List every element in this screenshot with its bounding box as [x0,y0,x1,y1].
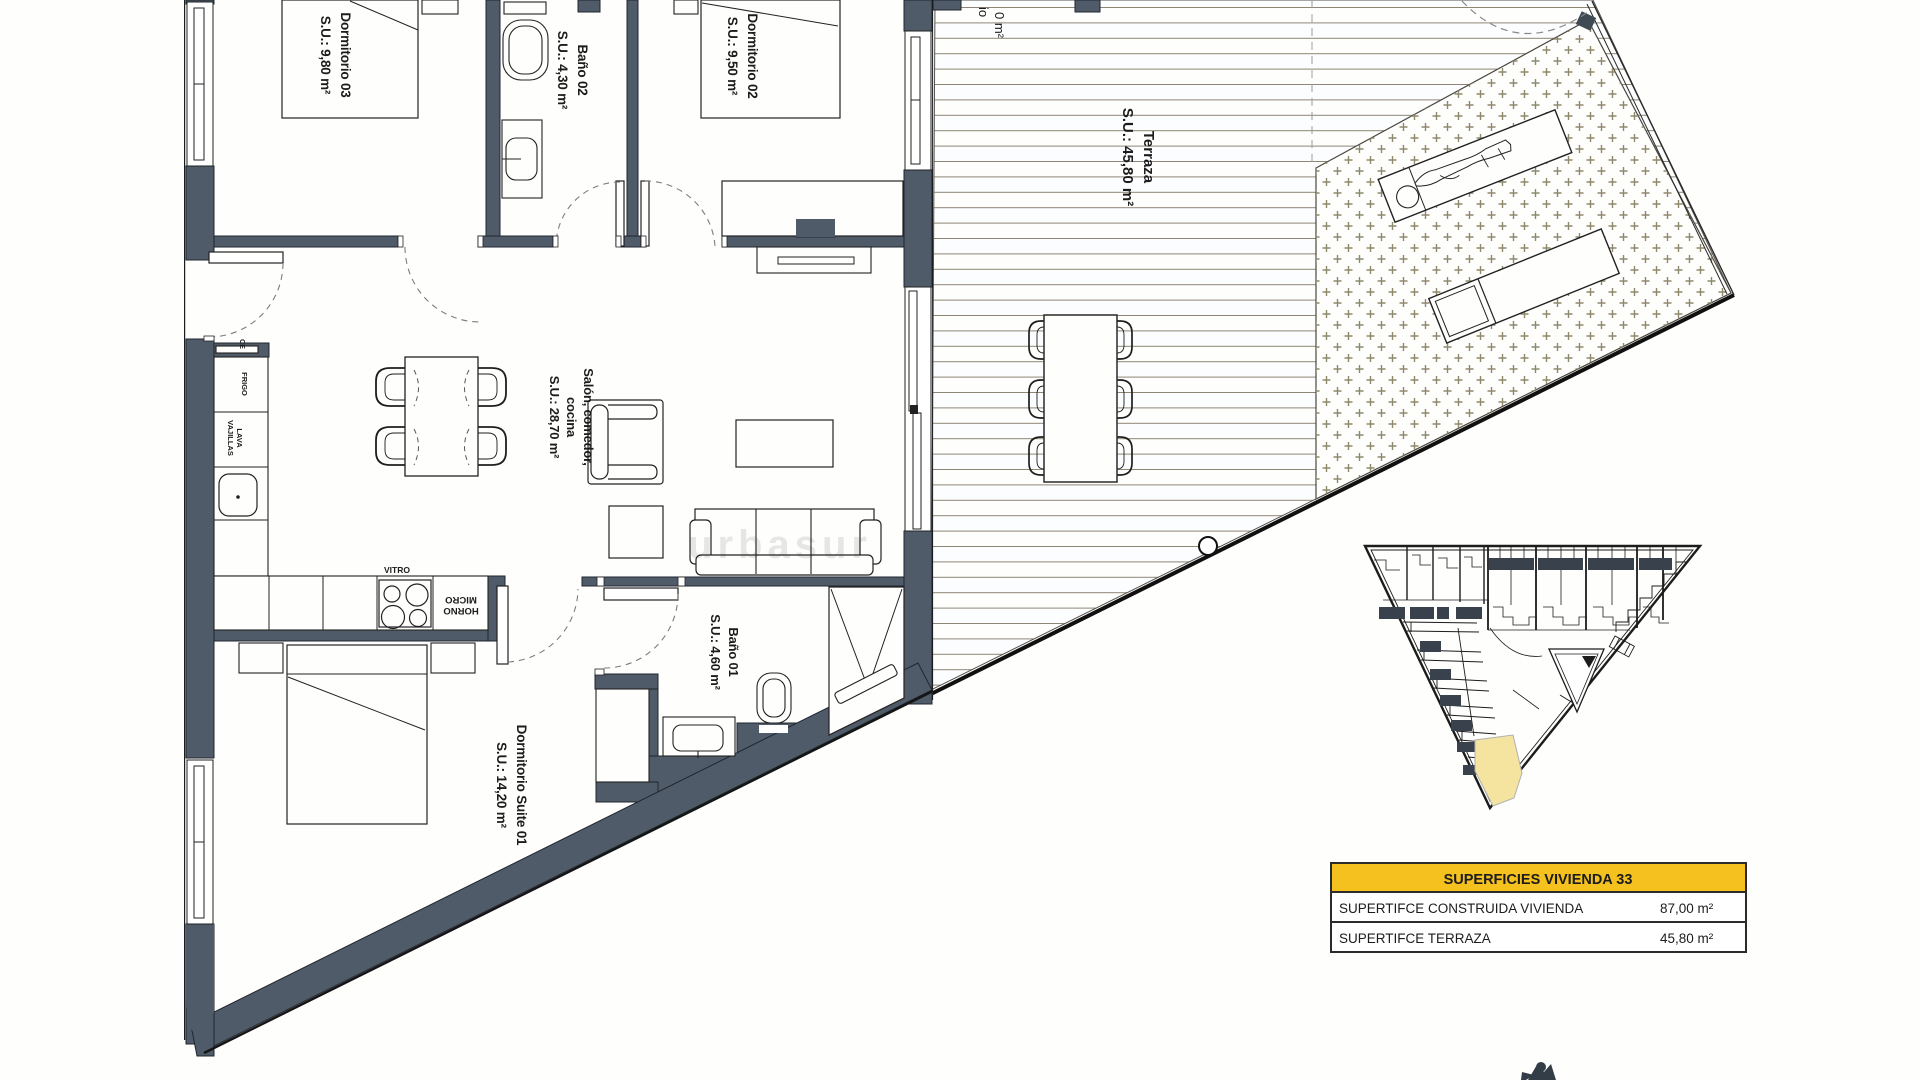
svg-text:87,00 m²: 87,00 m² [1660,901,1714,916]
svg-text:FRIGO: FRIGO [240,372,249,396]
svg-text:CE: CE [238,339,245,349]
svg-text:45,80 m²: 45,80 m² [1660,931,1714,946]
svg-text:0 m²: 0 m² [992,12,1007,39]
svg-text:io: io [976,7,991,17]
svg-text:SUPERTIFCE TERRAZA: SUPERTIFCE TERRAZA [1339,931,1491,946]
svg-text:VITRO: VITRO [384,565,410,575]
svg-text:SUPERFICIES VIVIENDA 33: SUPERFICIES VIVIENDA 33 [1444,872,1633,888]
svg-text:HORNOMICRO: HORNOMICRO [443,594,478,616]
svg-text:SUPERTIFCE CONSTRUIDA VIVIENDA: SUPERTIFCE CONSTRUIDA VIVIENDA [1339,901,1583,916]
svg-text:urbasur: urbasur [688,523,872,567]
